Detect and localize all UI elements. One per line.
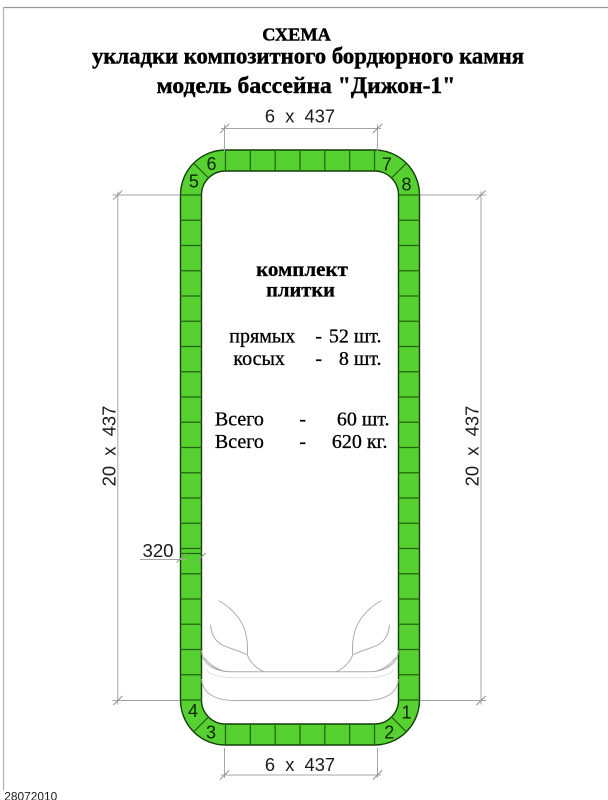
svg-text:прямых: прямых: [229, 326, 295, 348]
svg-text:6 x 437: 6 x 437: [265, 106, 335, 127]
svg-text:плитки: плитки: [266, 280, 335, 302]
svg-text:Всего: Всего: [215, 409, 264, 431]
svg-text:8 шт.: 8 шт.: [339, 348, 382, 370]
svg-text:-: -: [299, 431, 306, 453]
svg-text:4: 4: [188, 701, 198, 721]
svg-text:620 кг.: 620 кг.: [332, 431, 388, 453]
svg-text:косых: косых: [233, 348, 285, 370]
svg-text:2: 2: [384, 722, 394, 742]
svg-text:20 x 437: 20 x 437: [462, 406, 483, 487]
svg-text:7: 7: [382, 155, 392, 175]
svg-text:5: 5: [189, 172, 199, 192]
svg-text:-: -: [315, 326, 322, 348]
svg-text:комплект: комплект: [256, 257, 349, 281]
svg-text:6 x 437: 6 x 437: [265, 754, 335, 775]
svg-text:Всего: Всего: [215, 431, 264, 453]
svg-text:-: -: [315, 348, 322, 370]
svg-text:3: 3: [206, 722, 216, 742]
svg-text:60 шт.: 60 шт.: [337, 409, 390, 431]
svg-text:модель бассейна "Дижон-1": модель бассейна "Дижон-1": [157, 73, 456, 99]
svg-text:1: 1: [401, 703, 411, 723]
svg-text:52 шт.: 52 шт.: [329, 326, 382, 348]
svg-text:20 x 437: 20 x 437: [99, 406, 120, 487]
svg-text:320: 320: [142, 540, 173, 561]
svg-text:8: 8: [401, 175, 411, 195]
svg-text:28072010: 28072010: [4, 790, 57, 800]
svg-text:укладки композитного бордюрног: укладки композитного бордюрного камня: [92, 44, 524, 69]
svg-text:-: -: [299, 409, 306, 431]
svg-text:СХЕМА: СХЕМА: [262, 25, 331, 45]
svg-text:6: 6: [206, 154, 216, 174]
